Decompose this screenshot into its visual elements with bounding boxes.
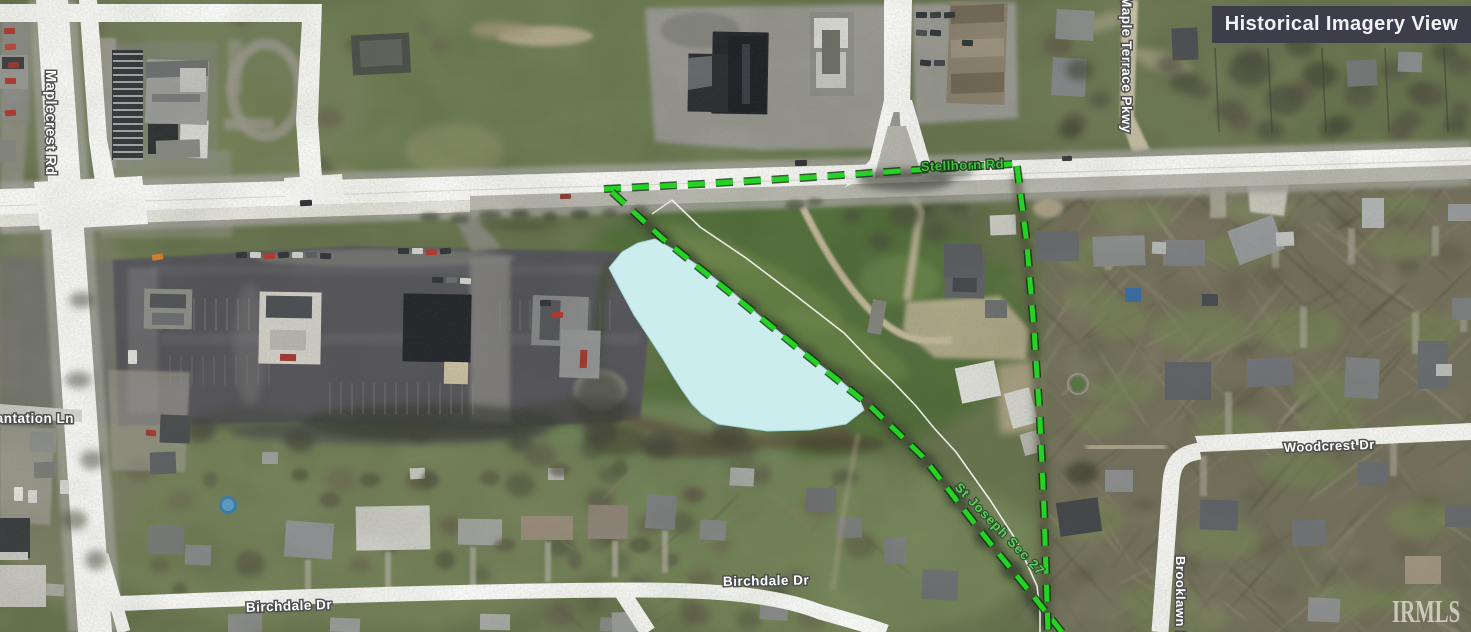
svg-text:Woodcrest Dr: Woodcrest Dr bbox=[1284, 437, 1375, 455]
svg-text:Stellhorn Rd: Stellhorn Rd bbox=[921, 156, 1005, 174]
svg-text:Brooklawn Dr: Brooklawn Dr bbox=[1173, 556, 1188, 632]
svg-text:Maple Terrace Pkwy: Maple Terrace Pkwy bbox=[1119, 0, 1134, 133]
svg-text:Plantation Ln: Plantation Ln bbox=[0, 411, 74, 426]
svg-text:Maplecrest Rd: Maplecrest Rd bbox=[42, 70, 58, 176]
svg-text:Birchdale Dr: Birchdale Dr bbox=[723, 572, 810, 589]
svg-text:Birchdale Dr: Birchdale Dr bbox=[246, 597, 333, 615]
